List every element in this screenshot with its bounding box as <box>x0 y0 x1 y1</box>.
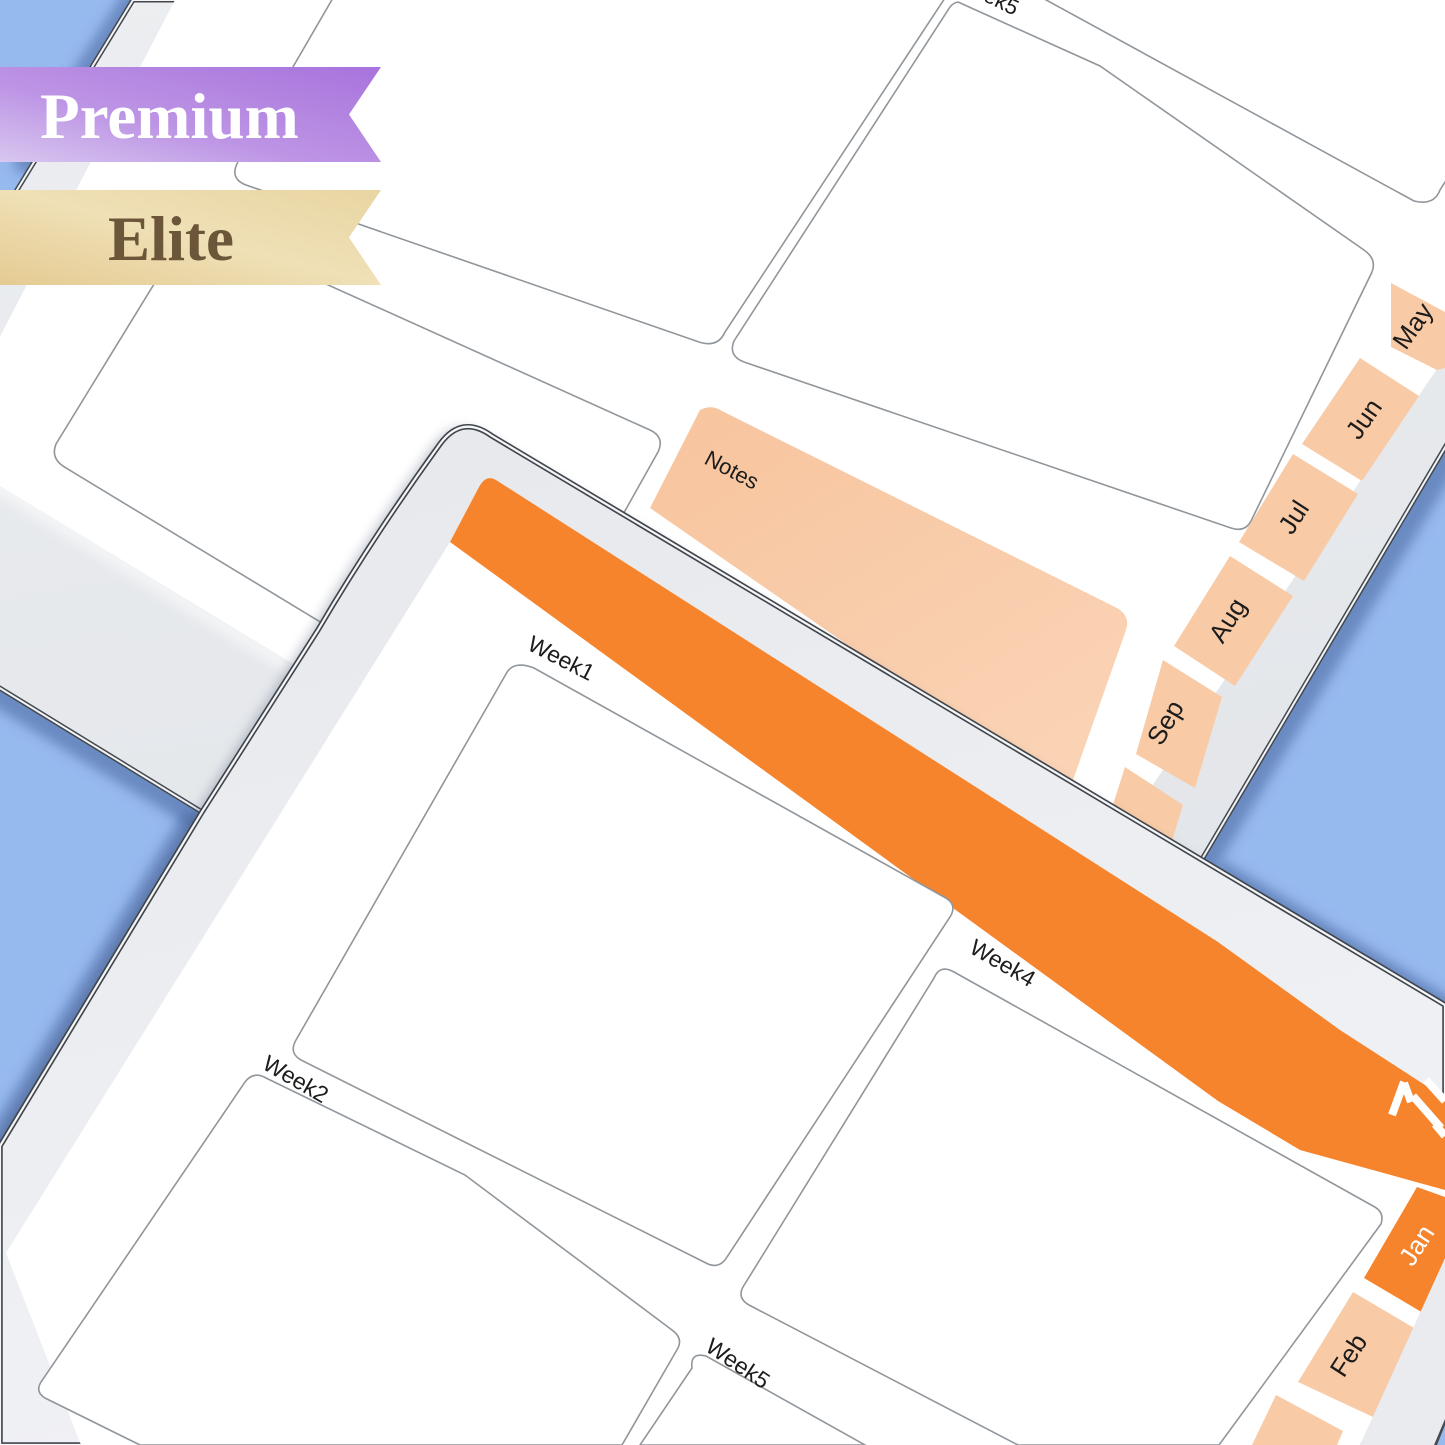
svg-text:Premium: Premium <box>40 81 299 153</box>
svg-text:Elite: Elite <box>108 204 234 274</box>
